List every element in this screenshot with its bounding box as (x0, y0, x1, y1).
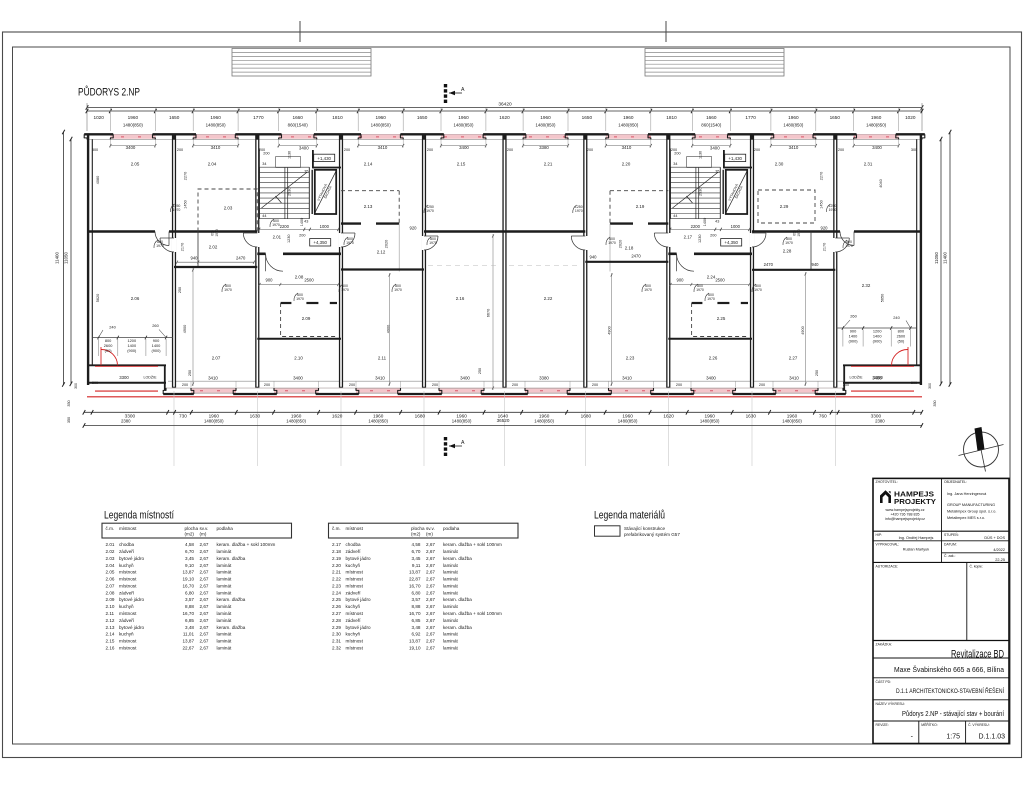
svg-text:2.11: 2.11 (378, 356, 387, 361)
svg-text:Stávající konstrukce: Stávající konstrukce (624, 526, 666, 531)
svg-text:6,85: 6,85 (185, 618, 194, 623)
svg-text:2.27: 2.27 (789, 356, 798, 361)
svg-text:3410: 3410 (378, 145, 388, 150)
svg-text:(m): (m) (200, 532, 207, 537)
svg-text:600: 600 (793, 230, 797, 236)
svg-text:2,67: 2,67 (426, 625, 435, 630)
svg-text:místnost: místnost (346, 639, 364, 644)
svg-text:2,67: 2,67 (200, 645, 209, 650)
svg-text:2.07: 2.07 (212, 356, 221, 361)
svg-text:2.19: 2.19 (636, 204, 645, 209)
svg-text:1620: 1620 (332, 414, 343, 419)
svg-text:kuchyň: kuchyň (119, 604, 134, 609)
svg-text:1770: 1770 (253, 115, 264, 120)
svg-text:2530: 2530 (287, 188, 291, 196)
svg-text:16,70: 16,70 (409, 584, 421, 589)
svg-text:3400: 3400 (460, 375, 470, 380)
svg-text:1480(850): 1480(850) (368, 419, 388, 424)
svg-text:laminát: laminát (217, 584, 233, 589)
svg-text:A: A (461, 440, 465, 446)
svg-text:ZAKÁZKA:: ZAKÁZKA: (876, 643, 892, 647)
svg-text:200: 200 (432, 383, 438, 387)
svg-text:200: 200 (263, 152, 269, 156)
svg-text:200: 200 (676, 383, 682, 387)
svg-text:13,87: 13,87 (409, 570, 421, 575)
svg-text:2.10: 2.10 (106, 604, 115, 609)
svg-text:200: 200 (299, 233, 305, 237)
svg-text:4/2022: 4/2022 (993, 548, 1005, 552)
svg-text:5620: 5620 (96, 294, 100, 302)
svg-text:34: 34 (262, 162, 266, 166)
svg-text:3,45: 3,45 (412, 556, 421, 561)
svg-text:zádveří: zádveří (346, 618, 362, 623)
svg-text:3410: 3410 (208, 375, 218, 380)
svg-text:2.26: 2.26 (709, 356, 718, 361)
svg-text:Č. zak.:: Č. zak.: (944, 553, 956, 558)
svg-text:Č. VÝKRESU:: Č. VÝKRESU: (968, 722, 990, 727)
svg-text:2,67: 2,67 (426, 584, 435, 589)
svg-text:2170: 2170 (823, 243, 827, 251)
svg-text:1970: 1970 (215, 229, 219, 237)
svg-text:2,67: 2,67 (200, 570, 209, 575)
svg-text:keram. dlažba: keram. dlažba (217, 597, 246, 602)
svg-text:350: 350 (67, 400, 71, 406)
svg-text:laminát: laminát (443, 618, 459, 623)
svg-text:AUTORIZACE:: AUTORIZACE: (876, 564, 899, 568)
svg-text:16,70: 16,70 (183, 584, 195, 589)
svg-text:laminát: laminát (217, 549, 233, 554)
svg-text:1480(850): 1480(850) (535, 122, 556, 127)
svg-text:1480(850): 1480(850) (783, 122, 804, 127)
svg-text:Revitalizace BD: Revitalizace BD (951, 649, 1004, 661)
svg-text:ZHOTOVITEL:: ZHOTOVITEL: (876, 480, 898, 484)
svg-text:3410: 3410 (211, 145, 221, 150)
svg-text:zádveří: zádveří (119, 590, 135, 595)
svg-text:2.11: 2.11 (106, 611, 115, 616)
svg-text:4080: 4080 (96, 176, 100, 184)
svg-text:760: 760 (819, 414, 827, 419)
svg-text:prefabrikovaný systém G57: prefabrikovaný systém G57 (624, 532, 680, 537)
svg-text:2.09: 2.09 (302, 316, 311, 321)
svg-text:2.24: 2.24 (332, 590, 341, 595)
svg-text:1960: 1960 (375, 115, 386, 120)
svg-text:2.17: 2.17 (332, 542, 341, 547)
svg-text:260: 260 (152, 323, 159, 328)
svg-text:1480(850): 1480(850) (534, 419, 554, 424)
svg-text:36420: 36420 (498, 102, 512, 108)
svg-text:2,67: 2,67 (426, 542, 435, 547)
svg-text:1480(850): 1480(850) (866, 122, 887, 127)
svg-text:MĚŘÍTKO:: MĚŘÍTKO: (921, 722, 937, 727)
svg-text:2,67: 2,67 (426, 577, 435, 582)
svg-text:2.13: 2.13 (106, 625, 115, 630)
svg-text:DÚS + DOS: DÚS + DOS (984, 535, 1005, 540)
svg-text:bytové jádro: bytové jádro (119, 597, 144, 602)
svg-text:200: 200 (674, 152, 680, 156)
svg-text:2.21: 2.21 (544, 162, 553, 167)
svg-text:300: 300 (911, 381, 917, 385)
svg-text:900: 900 (266, 278, 274, 283)
svg-text:2.01: 2.01 (106, 542, 115, 547)
svg-text:LODŽIE: LODŽIE (850, 375, 864, 380)
svg-text:Maxe Švabinského 665 a 666, Bí: Maxe Švabinského 665 a 666, Bílina (894, 665, 1004, 674)
svg-text:2,67: 2,67 (200, 542, 209, 547)
svg-text:2.08: 2.08 (106, 590, 115, 595)
svg-text:1480(850): 1480(850) (618, 419, 638, 424)
svg-text:2.01: 2.01 (273, 234, 282, 239)
svg-text:3380: 3380 (539, 375, 549, 380)
svg-text:2,67: 2,67 (426, 618, 435, 623)
svg-text:laminát: laminát (443, 584, 459, 589)
svg-text:3,57: 3,57 (185, 597, 194, 602)
svg-text:1960: 1960 (623, 115, 634, 120)
svg-text:keram. dlažba + sokl 100mm: keram. dlažba + sokl 100mm (443, 542, 502, 547)
svg-text:kuchyň: kuchyň (346, 563, 361, 568)
svg-text:200: 200 (259, 148, 265, 152)
svg-text:19,10: 19,10 (409, 645, 421, 650)
svg-text:2.26: 2.26 (332, 604, 341, 609)
svg-text:3380: 3380 (539, 145, 549, 150)
svg-text:Metalimpex Group spol. s.r.o.: Metalimpex Group spol. s.r.o. (947, 510, 996, 514)
svg-text:laminát: laminát (443, 645, 459, 650)
svg-text:1650: 1650 (169, 115, 180, 120)
svg-text:3400: 3400 (872, 145, 882, 150)
svg-text:900: 900 (677, 278, 685, 283)
svg-text:D.1.1.03: D.1.1.03 (979, 734, 1006, 741)
svg-text:2.18: 2.18 (625, 246, 634, 251)
svg-text:860(1540): 860(1540) (701, 122, 722, 127)
svg-text:laminát: laminát (217, 639, 233, 644)
svg-text:2,67: 2,67 (200, 632, 209, 637)
svg-text:místnost: místnost (346, 577, 364, 582)
svg-text:kuchyň: kuchyň (346, 604, 361, 609)
svg-text:200: 200 (349, 383, 355, 387)
svg-text:bytové jádro: bytové jádro (346, 597, 371, 602)
svg-text:kuchyň: kuchyň (119, 563, 134, 568)
svg-text:2.05: 2.05 (131, 162, 140, 167)
svg-text:č.m.: č.m. (332, 526, 341, 531)
svg-text:Ing. Jana Herzingerová: Ing. Jana Herzingerová (947, 492, 987, 496)
svg-text:2,67: 2,67 (426, 639, 435, 644)
svg-text:2,67: 2,67 (200, 563, 209, 568)
svg-text:1970: 1970 (224, 288, 232, 292)
svg-text:11050: 11050 (934, 252, 939, 264)
svg-text:2,67: 2,67 (426, 645, 435, 650)
svg-text:laminát: laminát (217, 604, 233, 609)
svg-text:chodba: chodba (346, 542, 362, 547)
svg-text:1960: 1960 (540, 115, 551, 120)
svg-text:keram. dlažba: keram. dlažba (443, 556, 472, 561)
svg-text:2.18: 2.18 (332, 549, 341, 554)
svg-text:místnost: místnost (346, 611, 364, 616)
svg-text:1970: 1970 (644, 288, 652, 292)
svg-text:6,80: 6,80 (185, 590, 194, 595)
svg-text:8,88: 8,88 (185, 604, 194, 609)
svg-text:3,45: 3,45 (185, 556, 194, 561)
svg-text:200: 200 (843, 383, 849, 387)
svg-text:16,70: 16,70 (183, 611, 195, 616)
svg-text:zádveří: zádveří (119, 549, 135, 554)
svg-text:1970: 1970 (296, 297, 304, 301)
svg-text:2,67: 2,67 (200, 549, 209, 554)
svg-text:2.20: 2.20 (332, 563, 341, 568)
svg-text:plocha: plocha (411, 526, 425, 531)
svg-text:2.28: 2.28 (332, 618, 341, 623)
svg-text:200: 200 (427, 148, 433, 152)
svg-text:místnost: místnost (119, 570, 137, 575)
svg-text:2.25: 2.25 (717, 316, 726, 321)
svg-text:2.06: 2.06 (106, 577, 115, 582)
svg-text:200: 200 (177, 148, 183, 152)
svg-text:2470: 2470 (631, 254, 641, 259)
svg-text:laminát: laminát (217, 590, 233, 595)
svg-text:2,67: 2,67 (426, 597, 435, 602)
svg-text:200: 200 (507, 148, 513, 152)
svg-text:2.16: 2.16 (106, 645, 115, 650)
svg-text:1970: 1970 (696, 288, 704, 292)
svg-text:(m2): (m2) (185, 532, 195, 537)
svg-text:2.30: 2.30 (775, 162, 784, 167)
svg-text:940: 940 (812, 262, 820, 267)
svg-text:3400: 3400 (872, 375, 882, 380)
svg-text:300: 300 (92, 381, 98, 385)
svg-text:1970: 1970 (829, 208, 837, 212)
svg-text:zádveří: zádveří (119, 618, 135, 623)
svg-text:2500: 2500 (304, 278, 314, 283)
svg-text:místnost: místnost (346, 645, 364, 650)
svg-text:22,87: 22,87 (409, 577, 421, 582)
svg-text:3400: 3400 (710, 145, 720, 150)
svg-text:GROUP MANUFACTURING: GROUP MANUFACTURING (947, 503, 995, 507)
svg-text:22,67: 22,67 (183, 645, 195, 650)
svg-text:43: 43 (304, 220, 308, 224)
svg-text:1960: 1960 (788, 115, 799, 120)
svg-text:2.04: 2.04 (106, 563, 115, 568)
svg-text:1620: 1620 (499, 115, 510, 120)
svg-text:1970: 1970 (341, 288, 349, 292)
svg-text:2.02: 2.02 (106, 549, 115, 554)
svg-text:2530: 2530 (698, 188, 702, 196)
svg-text:2.08: 2.08 (295, 275, 304, 280)
svg-text:1450: 1450 (820, 200, 824, 208)
svg-text:2,67: 2,67 (426, 604, 435, 609)
svg-text:2.31: 2.31 (332, 639, 341, 644)
svg-text:5650: 5650 (881, 294, 885, 302)
svg-text:2.32: 2.32 (862, 283, 871, 288)
svg-text:11050: 11050 (64, 252, 69, 264)
svg-text:2,67: 2,67 (426, 632, 435, 637)
svg-text:místnost: místnost (119, 526, 137, 531)
svg-text:HIP:: HIP: (876, 533, 883, 537)
svg-text:2.23: 2.23 (626, 356, 635, 361)
svg-text:1970: 1970 (785, 241, 793, 245)
svg-text:1960: 1960 (210, 115, 221, 120)
svg-text:3400: 3400 (293, 375, 303, 380)
svg-text:2.15: 2.15 (106, 639, 115, 644)
svg-text:plocha: plocha (185, 526, 199, 531)
svg-text:3,57: 3,57 (412, 597, 421, 602)
svg-text:9,11: 9,11 (412, 563, 421, 568)
svg-text:laminát: laminát (443, 570, 459, 575)
svg-text:laminát: laminát (217, 577, 233, 582)
svg-text:PŮDORYS 2.NP: PŮDORYS 2.NP (78, 86, 140, 99)
svg-text:3400: 3400 (126, 145, 136, 150)
svg-text:1480(850): 1480(850) (700, 419, 720, 424)
svg-text:11,01: 11,01 (183, 632, 195, 637)
svg-text:laminát: laminát (443, 577, 459, 582)
svg-text:1960: 1960 (128, 115, 139, 120)
svg-text:4040: 4040 (879, 179, 883, 187)
svg-text:Legenda materiálů: Legenda materiálů (594, 510, 665, 522)
svg-text:info@hampejsprojekty.cz: info@hampejsprojekty.cz (885, 517, 925, 521)
svg-text:1480(850): 1480(850) (782, 419, 802, 424)
svg-text:2,67: 2,67 (200, 625, 209, 630)
svg-text:200: 200 (592, 383, 598, 387)
svg-text:2020: 2020 (619, 240, 623, 248)
svg-text:bytové jádro: bytové jádro (346, 625, 371, 630)
svg-text:1970: 1970 (575, 209, 583, 213)
svg-text:4,58: 4,58 (185, 542, 194, 547)
svg-text:Ing. Ondřej Hampejs: Ing. Ondřej Hampejs (899, 536, 934, 540)
svg-text:2.10: 2.10 (294, 356, 303, 361)
svg-text:250: 250 (478, 368, 482, 374)
svg-text:místnost: místnost (119, 584, 137, 589)
svg-text:DATUM:: DATUM: (944, 542, 957, 546)
svg-text:2.03: 2.03 (224, 205, 233, 210)
svg-text:1480(850): 1480(850) (286, 419, 306, 424)
svg-text:300: 300 (928, 383, 932, 389)
svg-text:2.22: 2.22 (332, 577, 341, 582)
svg-text:podlaha: podlaha (443, 526, 460, 531)
svg-text:zádveří: zádveří (346, 590, 362, 595)
svg-text:1130: 1130 (698, 151, 702, 159)
svg-text:A: A (461, 87, 465, 93)
svg-text:2,67: 2,67 (426, 556, 435, 561)
svg-text:1970: 1970 (707, 297, 715, 301)
svg-text:2.02: 2.02 (209, 245, 218, 250)
svg-text:1000: 1000 (320, 224, 330, 229)
svg-text:200: 200 (344, 148, 350, 152)
svg-text:1970: 1970 (394, 288, 402, 292)
svg-text:místnost: místnost (119, 577, 137, 582)
svg-text:chodba: chodba (119, 542, 135, 547)
svg-text:2200: 2200 (691, 224, 701, 229)
svg-text:2,67: 2,67 (200, 556, 209, 561)
svg-text:1680: 1680 (581, 414, 592, 419)
svg-text:34: 34 (673, 162, 677, 166)
svg-text:940: 940 (590, 254, 598, 259)
svg-text:600: 600 (211, 230, 215, 236)
svg-text:2,67: 2,67 (426, 590, 435, 595)
svg-text:č.m.: č.m. (106, 526, 115, 531)
svg-text:240: 240 (109, 325, 116, 330)
svg-text:200: 200 (838, 148, 844, 152)
svg-text:laminát: laminát (443, 639, 459, 644)
svg-text:laminát: laminát (443, 632, 459, 637)
svg-text:2.09: 2.09 (106, 597, 115, 602)
svg-text:200: 200 (264, 383, 270, 387)
svg-text:1650: 1650 (417, 115, 428, 120)
svg-text:22-25: 22-25 (995, 558, 1005, 562)
svg-text:860(1540): 860(1540) (288, 122, 309, 127)
svg-text:2470: 2470 (764, 262, 774, 267)
svg-text:300: 300 (74, 383, 78, 389)
svg-text:35: 35 (304, 170, 308, 174)
svg-text:1630: 1630 (250, 414, 261, 419)
svg-text:44: 44 (673, 214, 677, 218)
svg-text:200: 200 (182, 383, 188, 387)
svg-text:350: 350 (933, 400, 937, 406)
svg-text:2,67: 2,67 (200, 639, 209, 644)
svg-text:1660: 1660 (706, 115, 717, 120)
svg-text:keram. dlažba + sokl 100mm: keram. dlažba + sokl 100mm (217, 542, 276, 547)
svg-text:+4,350: +4,350 (313, 240, 327, 245)
svg-text:200: 200 (710, 233, 716, 237)
svg-text:2380: 2380 (121, 419, 131, 424)
svg-text:13,87: 13,87 (183, 639, 195, 644)
svg-text:3410: 3410 (622, 375, 632, 380)
svg-text:místnost: místnost (346, 526, 364, 531)
svg-text:1810: 1810 (332, 115, 343, 120)
svg-text:16,70: 16,70 (409, 611, 421, 616)
svg-text:1970: 1970 (797, 229, 801, 237)
svg-text:1960: 1960 (871, 115, 882, 120)
svg-text:1480(850): 1480(850) (371, 122, 392, 127)
svg-text:2270: 2270 (820, 172, 824, 180)
svg-text:1650: 1650 (830, 115, 841, 120)
svg-text:2,67: 2,67 (200, 611, 209, 616)
svg-text:4900: 4900 (801, 326, 805, 334)
svg-text:místnost: místnost (119, 611, 137, 616)
svg-text:1480(850): 1480(850) (618, 122, 639, 127)
svg-text:(900): (900) (848, 338, 858, 343)
svg-text:+1,430: +1,430 (728, 156, 742, 161)
svg-text:1810: 1810 (666, 115, 677, 120)
svg-text:13,87: 13,87 (183, 570, 195, 575)
svg-text:2,67: 2,67 (426, 570, 435, 575)
svg-text:1970: 1970 (346, 241, 354, 245)
svg-text:laminát: laminát (217, 570, 233, 575)
svg-text:43: 43 (715, 220, 719, 224)
svg-text:keram. dlažba: keram. dlažba (217, 556, 246, 561)
svg-text:+4,350: +4,350 (724, 240, 738, 245)
svg-text:300: 300 (92, 148, 98, 152)
svg-text:250: 250 (815, 370, 819, 376)
svg-text:920: 920 (821, 226, 829, 231)
svg-text:2.29: 2.29 (332, 625, 341, 630)
svg-text:2.14: 2.14 (364, 162, 373, 167)
svg-text:2.19: 2.19 (332, 556, 341, 561)
svg-text:2.29: 2.29 (780, 204, 789, 209)
svg-text:laminát: laminát (443, 604, 459, 609)
svg-text:1130: 1130 (287, 151, 291, 159)
svg-text:1970: 1970 (173, 208, 181, 212)
svg-text:2170: 2170 (181, 243, 185, 251)
svg-text:1970: 1970 (426, 209, 434, 213)
svg-text:1660: 1660 (292, 115, 303, 120)
svg-text:1450: 1450 (183, 200, 187, 208)
svg-text:6,85: 6,85 (412, 618, 421, 623)
svg-text:laminát: laminát (443, 563, 459, 568)
svg-text:(m): (m) (426, 532, 433, 537)
svg-text:NÁZEV VÝKRESU:: NÁZEV VÝKRESU: (876, 702, 905, 706)
svg-text:2.12: 2.12 (106, 618, 115, 623)
svg-text:3300: 3300 (119, 375, 129, 380)
svg-text:OBJEDNATEL:: OBJEDNATEL: (944, 480, 967, 484)
svg-text:250: 250 (188, 370, 192, 376)
svg-text:1680: 1680 (415, 414, 426, 419)
svg-text:2.15: 2.15 (457, 162, 466, 167)
